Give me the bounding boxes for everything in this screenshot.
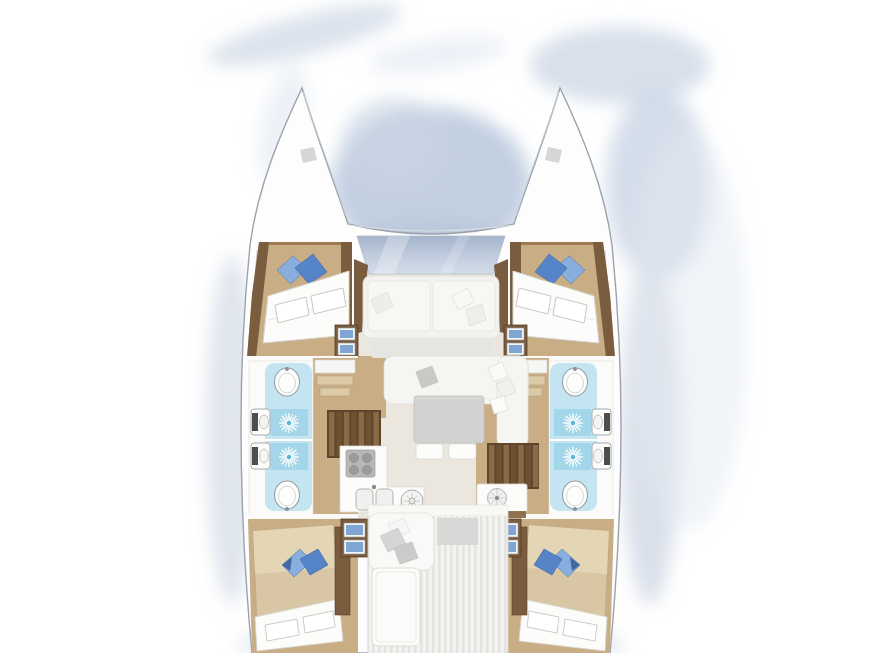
corridor-landing [315,360,355,373]
extractor-fan [488,489,507,508]
cabin-aft-port: Aft cabin, port hull [248,519,368,653]
faucet [372,485,376,489]
cockpit-module [437,518,478,545]
faucet [285,507,289,511]
salon-floor-tan-port [356,356,386,418]
corridor-step [317,376,353,385]
drawer-front [346,525,363,535]
seat-cushion [416,444,443,459]
shower-drain-icon [279,447,299,467]
faucet [285,367,289,371]
forward-sofa-base [371,338,493,358]
corridor-step [320,388,350,396]
toilet-seat [260,449,269,463]
salon-table [414,396,484,443]
drawer-front [340,330,353,338]
catamaran-floor-plan: Foredeck seating and coachroof window Fo… [0,0,871,653]
cabin-forward-port: Forward cabin, port hull [247,242,358,358]
toilet-tank [252,413,258,431]
bulkhead [247,514,358,519]
drawer-front [346,542,363,552]
cockpit-table [372,568,420,646]
aft-cockpit: Aft cockpit [368,505,508,653]
toilet-tank [252,447,258,465]
drawer-front [340,345,353,353]
toilet-seat [260,415,269,429]
seat-cushion [449,444,476,459]
cabin-head-trim [259,242,352,245]
foredeck: Foredeck seating and coachroof window [354,236,508,358]
shower-drain-icon [279,413,299,433]
stairs-starboard [487,443,539,489]
floor-plan-stage: Foredeck seating and coachroof window Fo… [0,0,871,653]
